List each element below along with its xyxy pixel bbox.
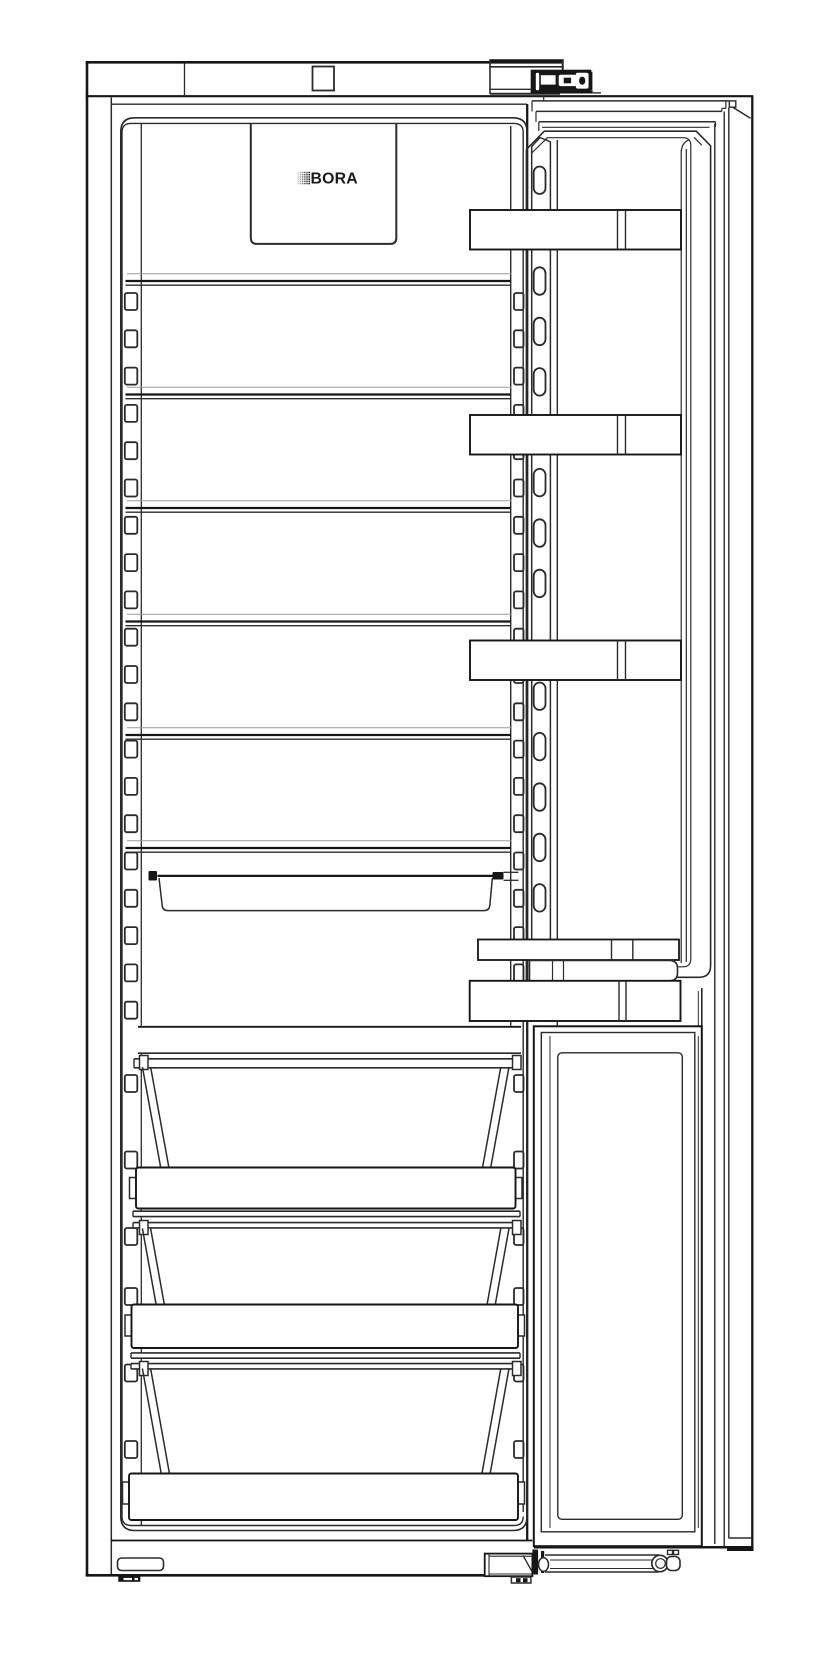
svg-text:BORA: BORA bbox=[311, 171, 358, 188]
